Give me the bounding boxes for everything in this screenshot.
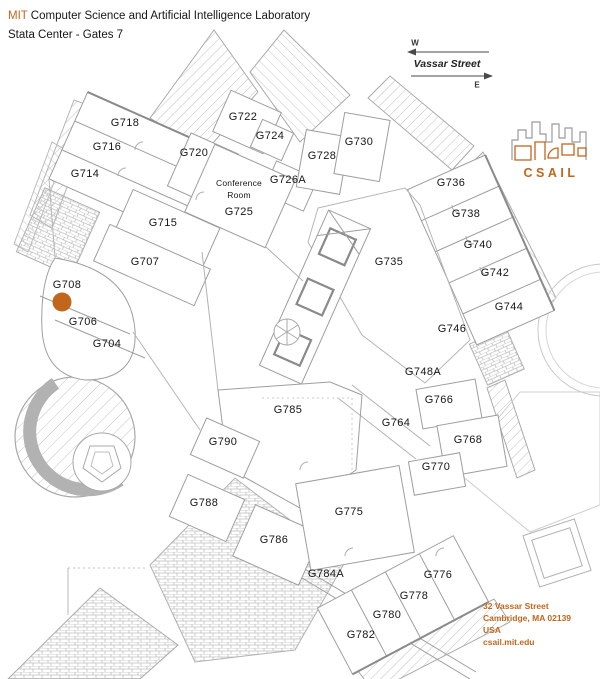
room-label-g728: G728 <box>308 150 337 162</box>
address-website: csail.mit.edu <box>483 636 571 648</box>
room-label-g746: G746 <box>438 323 467 335</box>
room-label-g715: G715 <box>149 217 178 229</box>
room-label-g790: G790 <box>209 436 238 448</box>
room-label-g770: G770 <box>422 461 451 473</box>
room-label-g742: G742 <box>481 267 510 279</box>
room-label-g778: G778 <box>400 590 429 602</box>
room-label-g714: G714 <box>71 168 100 180</box>
room-label-g735: G735 <box>375 256 404 268</box>
room-label-g724: G724 <box>256 130 285 142</box>
room-label-g766: G766 <box>425 394 454 406</box>
room-label-g722: G722 <box>229 111 258 123</box>
compass-west-label: W <box>411 39 419 48</box>
header-title-line: MIT Computer Science and Artificial Inte… <box>8 7 310 26</box>
room-label-g748a: G748A <box>405 366 441 378</box>
room-label-g706: G706 <box>69 316 98 328</box>
room-label-g744: G744 <box>495 301 524 313</box>
room-label-g718: G718 <box>111 117 140 129</box>
room-label-g708: G708 <box>53 279 82 291</box>
address-line-3: USA <box>483 624 571 636</box>
compass-east-label: E <box>474 81 479 90</box>
room-labels-layer: G718G716G714G720G722G724ConferenceRoomG7… <box>0 0 600 679</box>
room-label-g768: G768 <box>454 434 483 446</box>
address-block: 32 Vassar Street Cambridge, MA 02139 USA… <box>483 600 571 648</box>
mit-brand-text: MIT <box>8 10 28 22</box>
lab-title-text: Computer Science and Artificial Intellig… <box>31 10 310 22</box>
room-label-g720: G720 <box>180 147 209 159</box>
room-label-g738: G738 <box>452 208 481 220</box>
header-subtitle: Stata Center - Gates 7 <box>8 26 310 45</box>
room-label-g786: G786 <box>260 534 289 546</box>
csail-logo-text: CSAIL <box>524 166 579 180</box>
room-label-g775: G775 <box>335 506 364 518</box>
location-marker <box>53 293 72 312</box>
room-label-g725: G725 <box>225 206 254 218</box>
room-label-g784a: G784A <box>308 568 344 580</box>
room-label-g780: G780 <box>373 609 402 621</box>
address-line-2: Cambridge, MA 02139 <box>483 612 571 624</box>
room-label-g730: G730 <box>345 136 374 148</box>
room-label-g707: G707 <box>131 256 160 268</box>
room-label-conference: Conference <box>216 178 262 188</box>
street-name-label: Vassar Street <box>414 58 481 70</box>
room-label-room: Room <box>227 190 250 200</box>
room-label-g716: G716 <box>93 141 122 153</box>
room-label-g726a: G726A <box>270 174 306 186</box>
room-label-g736: G736 <box>437 177 466 189</box>
room-label-g776: G776 <box>424 569 453 581</box>
room-label-g704: G704 <box>93 338 122 350</box>
address-line-1: 32 Vassar Street <box>483 600 571 612</box>
room-label-g785: G785 <box>274 404 303 416</box>
room-label-g740: G740 <box>464 239 493 251</box>
room-label-g788: G788 <box>190 497 219 509</box>
room-label-g782: G782 <box>347 629 376 641</box>
stata-center-floor-plan-page: G718G716G714G720G722G724ConferenceRoomG7… <box>0 0 600 679</box>
room-label-g764: G764 <box>382 417 411 429</box>
header: MIT Computer Science and Artificial Inte… <box>8 7 310 45</box>
